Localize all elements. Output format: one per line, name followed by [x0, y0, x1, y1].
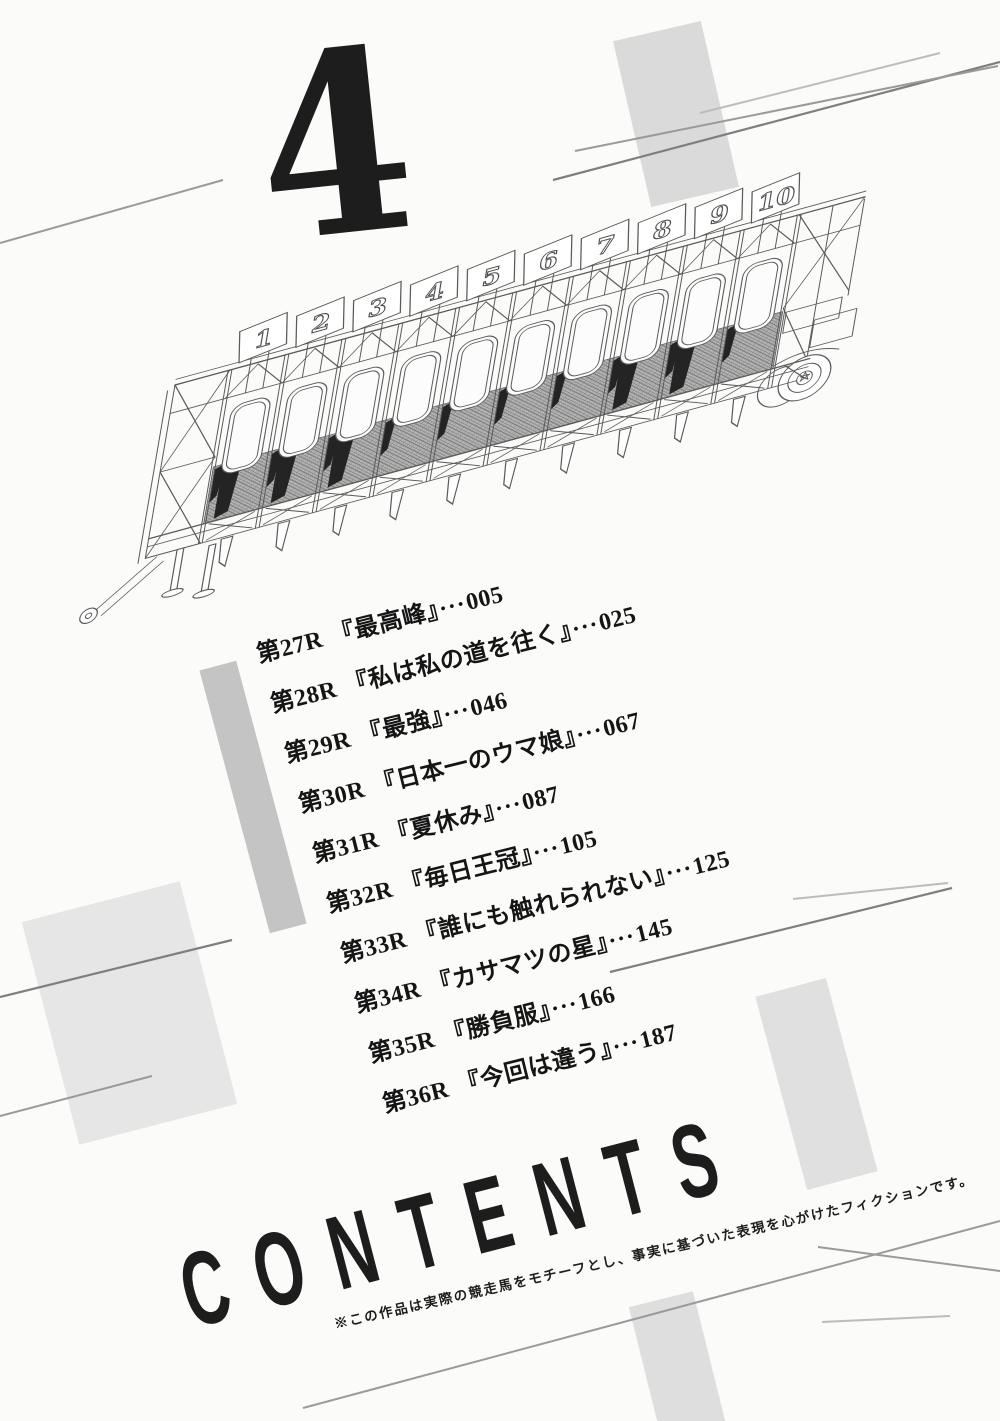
chapter-label: 第36R — [380, 1077, 452, 1119]
accent-line — [553, 62, 1000, 180]
chapter-page: 105 — [557, 826, 600, 860]
chapter-page: 125 — [690, 846, 733, 880]
chapter-label: 第32R — [324, 877, 396, 919]
chapter-title: 『夏休み』 — [384, 798, 498, 850]
gate-fin — [387, 489, 404, 521]
gate-fin — [501, 458, 518, 490]
accent-rect-bottom-left — [22, 881, 237, 1144]
chapter-label: 第33R — [338, 927, 410, 969]
chapter-label: 第29R — [282, 727, 354, 769]
chapter-title: 『毎日王冠』 — [398, 842, 535, 900]
accent-line — [700, 53, 940, 113]
gate-fin — [444, 474, 461, 506]
accent-bar-bottom-center — [629, 1291, 729, 1421]
chapter-title: 『勝負服』 — [440, 998, 554, 1050]
chapter-page: 087 — [519, 782, 562, 816]
chapter-label: 第34R — [352, 977, 424, 1019]
chapter-page: 046 — [468, 688, 511, 722]
gate-fin — [273, 521, 290, 553]
chapter-title: 『最強』 — [356, 704, 446, 750]
chapter-label: 第35R — [366, 1027, 438, 1069]
gate-fin — [729, 396, 746, 428]
gate-fin — [558, 443, 575, 475]
chapter-label: 第30R — [296, 777, 368, 819]
accent-line — [822, 1316, 950, 1322]
chapter-title: 『今回は違う』 — [454, 1036, 615, 1100]
chapter-page: 166 — [575, 982, 618, 1016]
accent-line — [793, 883, 948, 899]
gate-frame: 1 2 3 — [78, 165, 884, 631]
accent-line — [818, 1247, 1000, 1271]
chapter-page: 187 — [637, 1020, 680, 1054]
chapter-label: 第31R — [310, 827, 382, 869]
chapter-page: 145 — [633, 914, 676, 948]
gate-fin — [672, 412, 689, 444]
chapter-page: 067 — [601, 708, 644, 742]
gate-fin — [615, 427, 632, 459]
gate-fin — [330, 505, 347, 537]
gate-fin — [216, 536, 233, 568]
